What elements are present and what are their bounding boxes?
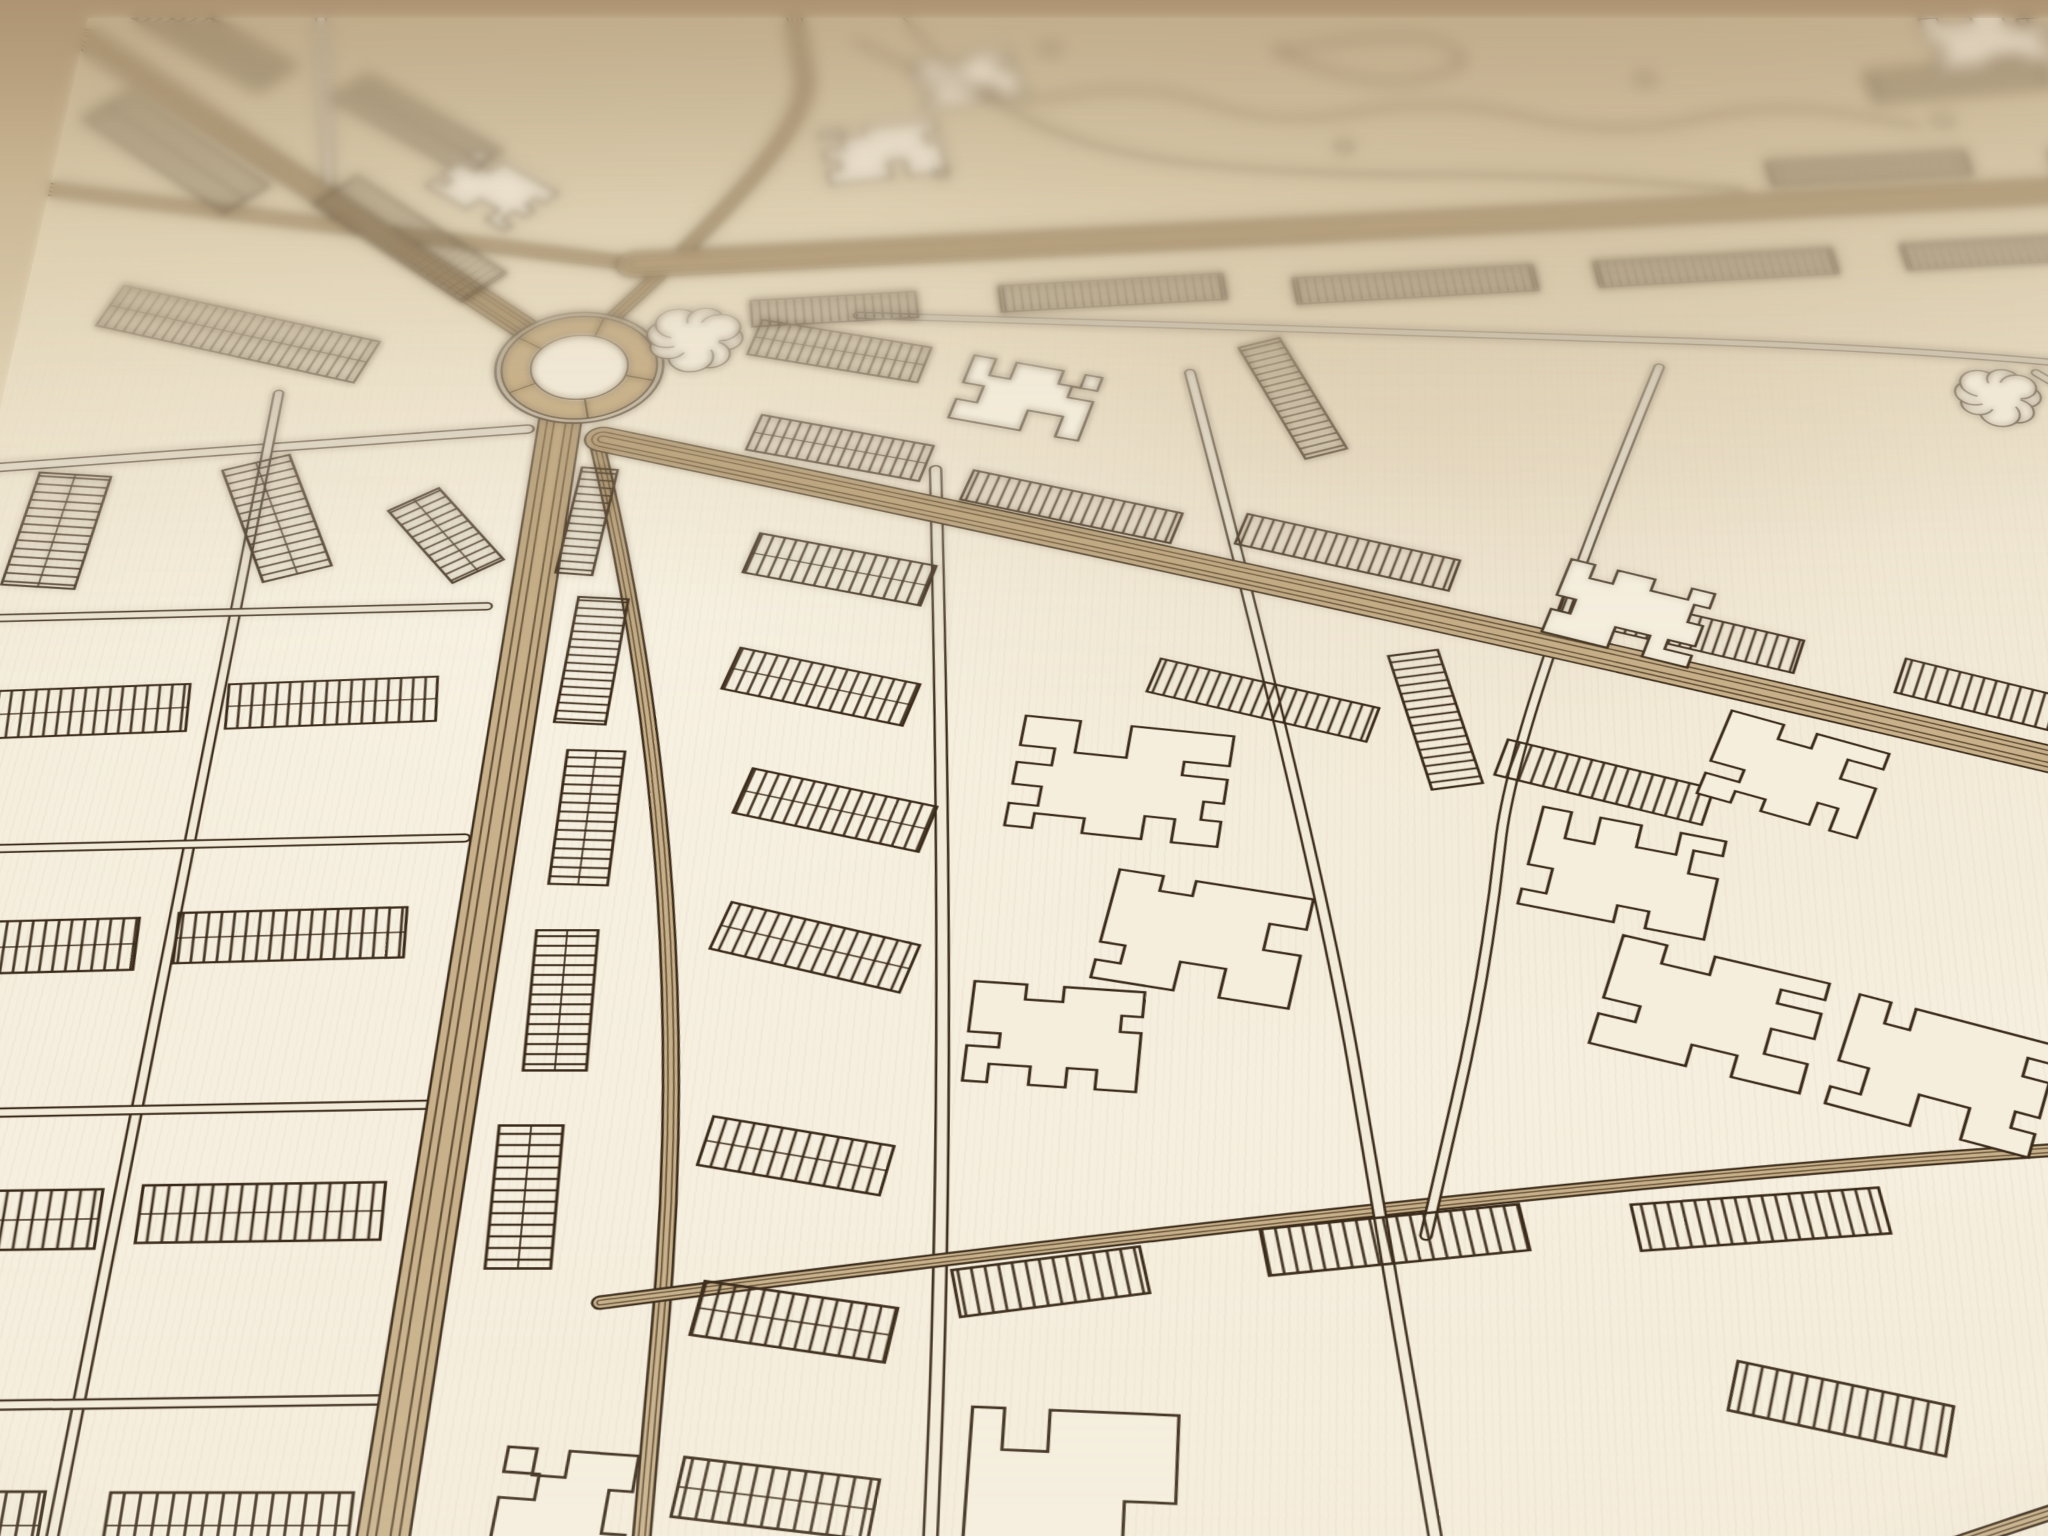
hatch-block [998, 273, 1226, 312]
road-ne-connector-road [590, 18, 808, 338]
hatch-block [747, 320, 931, 383]
building-outline [1091, 869, 1314, 1008]
building-outline [1004, 716, 1234, 847]
hatch-block [743, 533, 937, 605]
hatch-block [671, 1457, 880, 1536]
hatch-block [0, 1492, 45, 1536]
tree-circle [1336, 141, 1354, 152]
tree-clump [1950, 370, 2047, 427]
building-outline [1589, 935, 1829, 1093]
hatch-block [0, 684, 190, 740]
tree-circle [1040, 43, 1060, 55]
hatch-block [135, 1182, 385, 1243]
map-3d-surface [0, 18, 2048, 1536]
hatch-block [722, 648, 920, 726]
building-outline [1518, 807, 1726, 940]
building-outline [819, 120, 948, 185]
hatch-block [1765, 151, 1972, 185]
hatch-block [225, 677, 437, 729]
hatch-block [1495, 740, 1714, 825]
hatch-block [222, 455, 331, 582]
road-center-vertical-street [908, 470, 952, 1536]
building-outline [953, 1407, 1179, 1536]
building-outline [472, 1447, 639, 1536]
building-outline [1697, 711, 1889, 839]
hatch-block [690, 1281, 898, 1362]
building-outline [1825, 994, 2048, 1157]
wood-surface [0, 18, 2048, 1536]
hatch-block [1293, 265, 1539, 304]
hatch-block [1239, 338, 1347, 459]
park-path [1271, 35, 1467, 83]
building-outline [1918, 18, 2048, 69]
road-left-horizontal-street-4 [0, 1400, 411, 1409]
building-outline [962, 981, 1145, 1092]
hatch-block [485, 1126, 563, 1269]
hatch-block [1388, 650, 1482, 790]
road-top-boulevard [636, 181, 2048, 265]
tree-circle [1635, 74, 1655, 85]
hatch-block [0, 1189, 103, 1252]
hatch-block [523, 930, 598, 1070]
hatch-block [549, 750, 625, 885]
hatch-block [733, 768, 937, 851]
road-east-curvy-road-2 [1361, 367, 1782, 1235]
hatch-block [0, 918, 139, 976]
road-left-horizontal-street-2 [0, 838, 465, 851]
hatch-block [173, 907, 407, 963]
wooden-map-photo [0, 0, 2048, 1536]
hatch-block [554, 597, 628, 725]
hatch-block [1593, 248, 1839, 287]
hatch-block [1, 472, 111, 588]
hatch-block [710, 902, 920, 992]
hatch-block [388, 488, 503, 583]
hatch-block [96, 286, 380, 383]
road-left-horizontal-street-1 [0, 606, 487, 619]
map-sharp-layer [0, 0, 2048, 1536]
hatch-block [697, 1116, 894, 1195]
tree-circle [1932, 114, 1955, 126]
hatch-block [100, 1493, 353, 1536]
hatch-block [751, 291, 919, 326]
engraved-map-svg [0, 18, 2048, 1536]
hatch-block [1631, 1188, 1891, 1251]
building-outline [912, 51, 1024, 109]
building-outline [948, 355, 1102, 441]
park-path [899, 18, 1749, 192]
road-left-horizontal-street-3 [0, 1105, 439, 1116]
hatch-block [1728, 1361, 1954, 1456]
hatch-block [1900, 232, 2048, 270]
